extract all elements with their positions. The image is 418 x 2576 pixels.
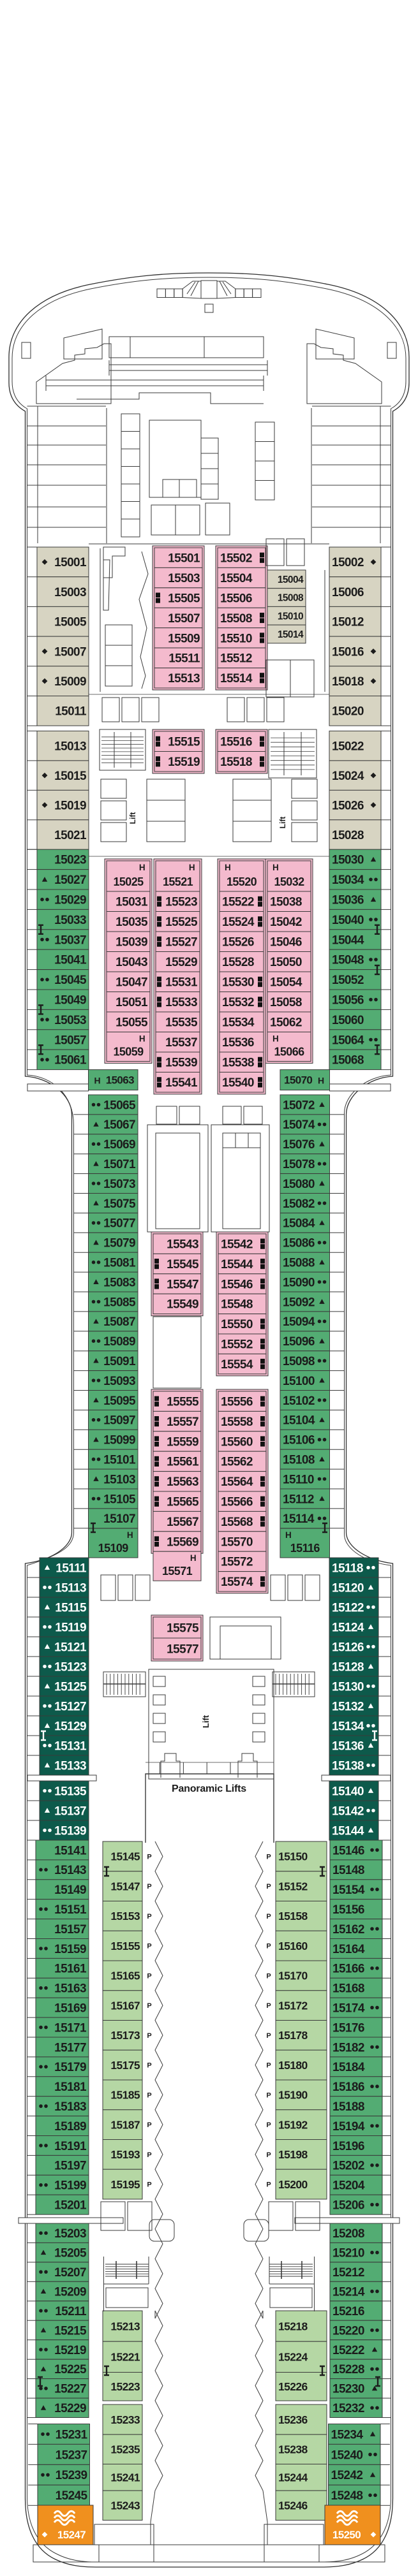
svg-text:P: P (266, 2121, 271, 2129)
svg-text:15094: 15094 (283, 1315, 315, 1329)
svg-text:15025: 15025 (113, 875, 144, 888)
svg-text:15003: 15003 (54, 586, 86, 599)
svg-text:15013: 15013 (54, 740, 86, 754)
svg-text:15001: 15001 (54, 556, 87, 569)
svg-text:15139: 15139 (54, 1824, 86, 1838)
svg-text:15236: 15236 (278, 2413, 308, 2426)
svg-text:15211: 15211 (55, 2305, 87, 2318)
svg-text:15207: 15207 (54, 2266, 86, 2280)
svg-text:15570: 15570 (221, 1535, 253, 1549)
svg-text:15162: 15162 (332, 1923, 364, 1936)
svg-text:P: P (266, 2181, 271, 2189)
svg-text:15111: 15111 (56, 1562, 87, 1575)
svg-text:15192: 15192 (278, 2118, 308, 2131)
svg-text:15157: 15157 (54, 1923, 86, 1936)
svg-text:15228: 15228 (332, 2363, 364, 2376)
svg-text:P: P (147, 1883, 151, 1891)
svg-text:15164: 15164 (332, 1943, 365, 1956)
svg-text:P: P (266, 2091, 271, 2099)
svg-text:15060: 15060 (332, 1014, 364, 1027)
svg-text:15232: 15232 (332, 2402, 364, 2415)
svg-text:15065: 15065 (103, 1099, 136, 1112)
svg-text:15510: 15510 (220, 632, 252, 645)
svg-text:15227: 15227 (54, 2383, 86, 2396)
svg-text:15140: 15140 (332, 1785, 364, 1798)
svg-text:15166: 15166 (332, 1963, 364, 1976)
svg-text:15577: 15577 (167, 1643, 198, 1656)
svg-text:15194: 15194 (332, 2120, 365, 2133)
svg-text:P: P (266, 1883, 271, 1891)
svg-text:P: P (266, 1853, 271, 1861)
svg-text:15045: 15045 (54, 974, 87, 987)
svg-text:15562: 15562 (221, 1456, 253, 1469)
svg-text:15221: 15221 (110, 2351, 140, 2364)
svg-text:15110: 15110 (283, 1473, 314, 1486)
svg-text:15196: 15196 (332, 2140, 364, 2153)
svg-text:15572: 15572 (221, 1556, 253, 1569)
svg-text:15002: 15002 (332, 556, 364, 569)
svg-text:15575: 15575 (167, 1621, 199, 1635)
svg-text:15021: 15021 (54, 829, 87, 842)
svg-text:15527: 15527 (165, 936, 197, 949)
svg-text:15079: 15079 (103, 1237, 135, 1250)
svg-text:15038: 15038 (270, 896, 302, 909)
svg-text:15120: 15120 (332, 1581, 364, 1595)
svg-text:15550: 15550 (221, 1318, 253, 1331)
svg-text:H: H (190, 1553, 196, 1563)
svg-text:15151: 15151 (54, 1903, 87, 1917)
svg-text:15043: 15043 (116, 956, 147, 969)
svg-text:15019: 15019 (54, 799, 86, 812)
svg-text:15109: 15109 (98, 1542, 129, 1555)
svg-text:15191: 15191 (54, 2140, 87, 2153)
svg-text:P: P (266, 1913, 271, 1921)
svg-text:15006: 15006 (332, 586, 364, 599)
svg-text:15062: 15062 (270, 1016, 302, 1030)
svg-text:15143: 15143 (54, 1864, 86, 1877)
svg-text:15071: 15071 (103, 1158, 136, 1171)
svg-text:15116: 15116 (290, 1542, 320, 1555)
svg-text:15098: 15098 (283, 1355, 315, 1368)
svg-text:15225: 15225 (54, 2363, 87, 2376)
svg-text:15155: 15155 (110, 1940, 140, 1952)
svg-text:15241: 15241 (110, 2471, 140, 2484)
svg-text:15504: 15504 (220, 572, 253, 585)
svg-text:15171: 15171 (54, 2021, 87, 2035)
svg-text:15559: 15559 (167, 1435, 198, 1449)
svg-text:15073: 15073 (103, 1178, 135, 1191)
svg-text:15239: 15239 (56, 2469, 87, 2482)
svg-text:15544: 15544 (221, 1258, 253, 1271)
svg-text:15113: 15113 (55, 1581, 86, 1595)
svg-text:15246: 15246 (278, 2499, 308, 2512)
svg-text:15501: 15501 (168, 552, 200, 566)
svg-text:15087: 15087 (103, 1315, 135, 1329)
svg-text:15183: 15183 (54, 2100, 86, 2114)
svg-text:15050: 15050 (270, 956, 302, 969)
svg-text:15163: 15163 (54, 1982, 86, 1996)
svg-text:15119: 15119 (55, 1621, 86, 1634)
svg-text:15147: 15147 (110, 1880, 140, 1892)
svg-text:15141: 15141 (54, 1844, 87, 1857)
svg-text:15015: 15015 (54, 770, 87, 783)
svg-text:15088: 15088 (283, 1257, 315, 1270)
svg-text:P: P (147, 2032, 151, 2040)
svg-text:H: H (225, 863, 230, 872)
svg-text:15531: 15531 (165, 976, 198, 990)
svg-text:15199: 15199 (54, 2179, 86, 2193)
svg-text:Lift: Lift (128, 812, 137, 824)
svg-text:15214: 15214 (332, 2285, 365, 2299)
svg-text:15229: 15229 (54, 2402, 86, 2415)
svg-text:15152: 15152 (278, 1880, 308, 1892)
svg-text:15036: 15036 (332, 894, 364, 907)
svg-text:P: P (266, 2062, 271, 2070)
svg-text:15537: 15537 (165, 1036, 197, 1050)
svg-text:15114: 15114 (283, 1512, 315, 1526)
svg-text:15027: 15027 (54, 874, 86, 887)
svg-text:15034: 15034 (332, 874, 364, 887)
svg-text:P: P (147, 2181, 151, 2189)
svg-text:15070: 15070 (284, 1074, 312, 1087)
svg-text:Lift: Lift (278, 817, 287, 829)
svg-text:15556: 15556 (221, 1396, 253, 1409)
svg-text:15205: 15205 (54, 2247, 87, 2260)
svg-text:15536: 15536 (222, 1036, 254, 1050)
svg-text:15231: 15231 (56, 2428, 88, 2441)
svg-text:15047: 15047 (116, 976, 147, 990)
svg-text:15042: 15042 (270, 916, 302, 929)
svg-text:15565: 15565 (167, 1496, 199, 1509)
svg-text:15056: 15056 (332, 994, 364, 1007)
svg-text:Lift: Lift (201, 1715, 211, 1728)
svg-text:15075: 15075 (103, 1197, 136, 1211)
svg-text:15156: 15156 (332, 1903, 364, 1917)
svg-text:P: P (147, 2062, 151, 2070)
svg-text:15104: 15104 (283, 1414, 315, 1428)
svg-text:15186: 15186 (332, 2081, 364, 2094)
svg-text:15127: 15127 (54, 1700, 86, 1713)
svg-text:15533: 15533 (165, 996, 197, 1009)
svg-text:15555: 15555 (167, 1396, 199, 1409)
svg-text:15063: 15063 (106, 1074, 134, 1087)
svg-text:15048: 15048 (332, 954, 364, 967)
svg-text:15052: 15052 (332, 974, 364, 987)
svg-text:15037: 15037 (54, 933, 86, 947)
svg-text:15028: 15028 (332, 829, 364, 842)
svg-text:15187: 15187 (110, 2118, 140, 2131)
svg-text:15175: 15175 (110, 2059, 140, 2072)
svg-text:15173: 15173 (110, 2029, 140, 2042)
svg-text:15083: 15083 (103, 1276, 135, 1289)
svg-text:15142: 15142 (332, 1804, 364, 1818)
svg-text:15541: 15541 (165, 1076, 198, 1090)
svg-text:15082: 15082 (283, 1197, 315, 1211)
svg-text:P: P (147, 2002, 151, 2010)
svg-text:15080: 15080 (283, 1178, 315, 1191)
svg-text:15128: 15128 (332, 1660, 364, 1674)
svg-text:15066: 15066 (274, 1046, 304, 1058)
svg-text:15523: 15523 (165, 896, 197, 909)
svg-text:15123: 15123 (54, 1660, 86, 1674)
svg-text:15051: 15051 (116, 996, 148, 1009)
svg-text:15100: 15100 (283, 1375, 315, 1388)
svg-text:P: P (147, 2121, 151, 2129)
svg-text:15016: 15016 (332, 645, 364, 659)
svg-text:15058: 15058 (270, 996, 302, 1009)
svg-text:15201: 15201 (54, 2199, 87, 2213)
svg-text:15161: 15161 (54, 1963, 87, 1976)
svg-text:P: P (266, 1943, 271, 1950)
svg-text:15153: 15153 (110, 1910, 140, 1922)
svg-text:15185: 15185 (110, 2089, 140, 2102)
svg-text:15511: 15511 (168, 652, 200, 666)
svg-text:15540: 15540 (222, 1076, 254, 1090)
svg-text:15072: 15072 (283, 1099, 315, 1112)
svg-text:15222: 15222 (332, 2344, 364, 2357)
svg-text:15132: 15132 (332, 1700, 364, 1713)
svg-text:15520: 15520 (227, 875, 257, 888)
svg-text:15216: 15216 (332, 2305, 364, 2318)
svg-text:15012: 15012 (332, 616, 364, 629)
svg-text:P: P (147, 1943, 151, 1950)
svg-text:15245: 15245 (56, 2489, 88, 2503)
svg-text:15009: 15009 (54, 675, 86, 689)
svg-text:15118: 15118 (332, 1562, 363, 1575)
svg-text:15101: 15101 (103, 1454, 136, 1467)
svg-text:15509: 15509 (168, 632, 200, 645)
svg-text:15179: 15179 (54, 2061, 86, 2074)
svg-text:15146: 15146 (332, 1844, 364, 1857)
svg-text:15534: 15534 (222, 1016, 255, 1030)
svg-text:15538: 15538 (222, 1057, 254, 1070)
svg-text:15514: 15514 (220, 672, 253, 685)
svg-text:Panoramic Lifts: Panoramic Lifts (172, 1783, 246, 1794)
svg-text:15547: 15547 (167, 1278, 198, 1291)
svg-text:15563: 15563 (167, 1475, 198, 1489)
svg-text:15105: 15105 (103, 1493, 136, 1506)
svg-text:15512: 15512 (220, 652, 252, 666)
svg-text:15168: 15168 (332, 1982, 364, 1996)
svg-text:15068: 15068 (332, 1054, 364, 1067)
svg-text:15198: 15198 (278, 2148, 308, 2161)
svg-text:15067: 15067 (103, 1118, 135, 1132)
svg-text:15513: 15513 (168, 672, 200, 685)
svg-text:15091: 15091 (103, 1355, 136, 1368)
svg-text:H: H (318, 1076, 324, 1086)
svg-text:15159: 15159 (54, 1943, 86, 1956)
svg-text:H: H (139, 1034, 145, 1044)
svg-text:15502: 15502 (220, 552, 252, 566)
svg-text:15085: 15085 (103, 1296, 136, 1309)
svg-text:15076: 15076 (283, 1138, 315, 1152)
svg-text:H: H (189, 863, 195, 872)
svg-text:15193: 15193 (110, 2148, 140, 2161)
svg-text:H: H (94, 1076, 101, 1086)
svg-text:15160: 15160 (278, 1940, 308, 1952)
svg-text:P: P (147, 2151, 151, 2159)
svg-text:15177: 15177 (54, 2041, 86, 2054)
svg-text:15018: 15018 (332, 675, 364, 689)
svg-text:15097: 15097 (103, 1414, 135, 1428)
svg-text:15208: 15208 (332, 2227, 364, 2241)
svg-text:15248: 15248 (331, 2489, 363, 2503)
svg-text:15031: 15031 (116, 896, 148, 909)
svg-text:15049: 15049 (54, 994, 86, 1007)
svg-text:15524: 15524 (222, 916, 255, 929)
svg-text:15125: 15125 (54, 1680, 87, 1694)
svg-text:15137: 15137 (54, 1804, 86, 1818)
svg-text:15010: 15010 (278, 611, 303, 622)
svg-text:15178: 15178 (278, 2029, 308, 2042)
svg-text:H: H (285, 1530, 291, 1540)
svg-text:15112: 15112 (283, 1493, 314, 1506)
svg-text:15167: 15167 (110, 1999, 140, 2012)
svg-text:15554: 15554 (221, 1358, 253, 1372)
svg-text:15134: 15134 (332, 1720, 364, 1733)
svg-text:15569: 15569 (167, 1535, 198, 1549)
svg-text:15150: 15150 (278, 1850, 308, 1863)
svg-text:15519: 15519 (168, 756, 200, 769)
svg-text:15181: 15181 (54, 2081, 87, 2094)
svg-text:15053: 15053 (54, 1014, 86, 1027)
svg-text:15561: 15561 (167, 1456, 199, 1469)
svg-text:15121: 15121 (54, 1641, 87, 1654)
svg-text:15011: 15011 (55, 705, 87, 719)
svg-text:15530: 15530 (222, 976, 254, 990)
svg-text:15030: 15030 (332, 854, 364, 867)
svg-text:15033: 15033 (54, 914, 86, 927)
svg-text:P: P (147, 2091, 151, 2099)
svg-text:15204: 15204 (332, 2179, 365, 2193)
svg-text:15195: 15195 (110, 2178, 140, 2191)
svg-text:P: P (266, 2151, 271, 2159)
svg-text:15020: 15020 (332, 705, 364, 719)
svg-text:15077: 15077 (103, 1217, 135, 1231)
svg-text:15059: 15059 (113, 1046, 144, 1058)
svg-text:15129: 15129 (54, 1720, 86, 1733)
svg-text:H: H (272, 863, 278, 872)
svg-text:15170: 15170 (278, 1970, 308, 1982)
svg-text:15149: 15149 (54, 1884, 86, 1897)
svg-text:15202: 15202 (332, 2160, 364, 2173)
svg-text:15200: 15200 (278, 2178, 308, 2191)
svg-text:15133: 15133 (54, 1759, 86, 1773)
svg-text:15044: 15044 (332, 933, 364, 947)
svg-text:15567: 15567 (167, 1516, 198, 1529)
svg-text:15213: 15213 (110, 2320, 140, 2332)
svg-text:15035: 15035 (116, 916, 148, 929)
svg-text:15135: 15135 (54, 1785, 87, 1798)
svg-text:P: P (147, 1972, 151, 1980)
svg-text:15560: 15560 (221, 1435, 253, 1449)
svg-text:15542: 15542 (221, 1238, 253, 1252)
svg-text:15219: 15219 (54, 2344, 86, 2357)
svg-text:15508: 15508 (220, 612, 252, 626)
svg-text:15545: 15545 (167, 1258, 199, 1271)
svg-text:15235: 15235 (110, 2443, 140, 2456)
svg-text:15081: 15081 (103, 1257, 136, 1270)
svg-text:15250: 15250 (332, 2529, 361, 2541)
svg-text:15126: 15126 (332, 1641, 364, 1654)
svg-text:H: H (127, 1530, 133, 1540)
svg-text:15144: 15144 (332, 1824, 364, 1838)
svg-text:15130: 15130 (332, 1680, 364, 1694)
svg-text:15154: 15154 (332, 1884, 365, 1897)
svg-text:P: P (266, 2002, 271, 2010)
svg-text:15212: 15212 (332, 2266, 364, 2280)
svg-text:15005: 15005 (54, 616, 87, 629)
svg-text:15014: 15014 (278, 629, 304, 640)
svg-text:15108: 15108 (283, 1454, 315, 1467)
svg-text:15552: 15552 (221, 1338, 253, 1352)
svg-text:15521: 15521 (163, 875, 193, 888)
svg-text:15226: 15226 (278, 2380, 308, 2393)
svg-text:15040: 15040 (332, 914, 364, 927)
svg-text:15023: 15023 (54, 854, 86, 867)
svg-text:15093: 15093 (103, 1375, 135, 1388)
svg-text:15122: 15122 (332, 1601, 364, 1614)
svg-text:15571: 15571 (162, 1565, 193, 1577)
svg-text:15032: 15032 (274, 875, 304, 888)
svg-text:15095: 15095 (103, 1394, 136, 1408)
svg-text:P: P (147, 1913, 151, 1921)
svg-text:15115: 15115 (55, 1601, 87, 1614)
svg-text:15029: 15029 (54, 894, 86, 907)
svg-text:15096: 15096 (283, 1335, 315, 1349)
svg-text:15180: 15180 (278, 2059, 308, 2072)
svg-text:15008: 15008 (278, 593, 304, 604)
svg-text:15525: 15525 (165, 916, 198, 929)
svg-text:15516: 15516 (220, 736, 252, 749)
svg-text:15506: 15506 (220, 592, 252, 605)
svg-text:15090: 15090 (283, 1276, 315, 1289)
svg-text:15188: 15188 (332, 2100, 364, 2114)
svg-text:15240: 15240 (331, 2448, 363, 2462)
svg-text:15237: 15237 (56, 2448, 87, 2462)
svg-text:15057: 15057 (54, 1034, 86, 1047)
svg-text:15107: 15107 (103, 1512, 135, 1526)
svg-text:15172: 15172 (278, 1999, 308, 2012)
svg-text:15224: 15224 (278, 2351, 308, 2364)
svg-text:15041: 15041 (54, 954, 87, 967)
svg-text:15039: 15039 (116, 936, 147, 949)
svg-text:15548: 15548 (221, 1298, 253, 1312)
svg-text:15242: 15242 (331, 2469, 363, 2482)
svg-text:15566: 15566 (221, 1496, 253, 1509)
svg-text:H: H (139, 863, 145, 872)
svg-text:15238: 15238 (278, 2443, 308, 2456)
svg-text:15574: 15574 (221, 1576, 253, 1589)
svg-text:15148: 15148 (332, 1864, 364, 1877)
svg-text:15022: 15022 (332, 740, 364, 754)
svg-text:15190: 15190 (278, 2089, 308, 2102)
svg-text:15515: 15515 (168, 736, 200, 749)
svg-text:15078: 15078 (283, 1158, 315, 1171)
svg-text:15518: 15518 (220, 756, 252, 769)
svg-text:15220: 15220 (332, 2324, 364, 2338)
svg-text:15106: 15106 (283, 1434, 315, 1447)
svg-text:15131: 15131 (54, 1739, 87, 1753)
svg-text:15086: 15086 (283, 1237, 315, 1250)
svg-text:15244: 15244 (278, 2471, 308, 2484)
svg-text:15503: 15503 (168, 572, 200, 585)
svg-text:15064: 15064 (332, 1034, 364, 1047)
svg-text:15564: 15564 (221, 1475, 253, 1489)
svg-text:15243: 15243 (110, 2499, 140, 2512)
svg-text:15535: 15535 (165, 1016, 198, 1030)
svg-text:15136: 15136 (332, 1739, 364, 1753)
